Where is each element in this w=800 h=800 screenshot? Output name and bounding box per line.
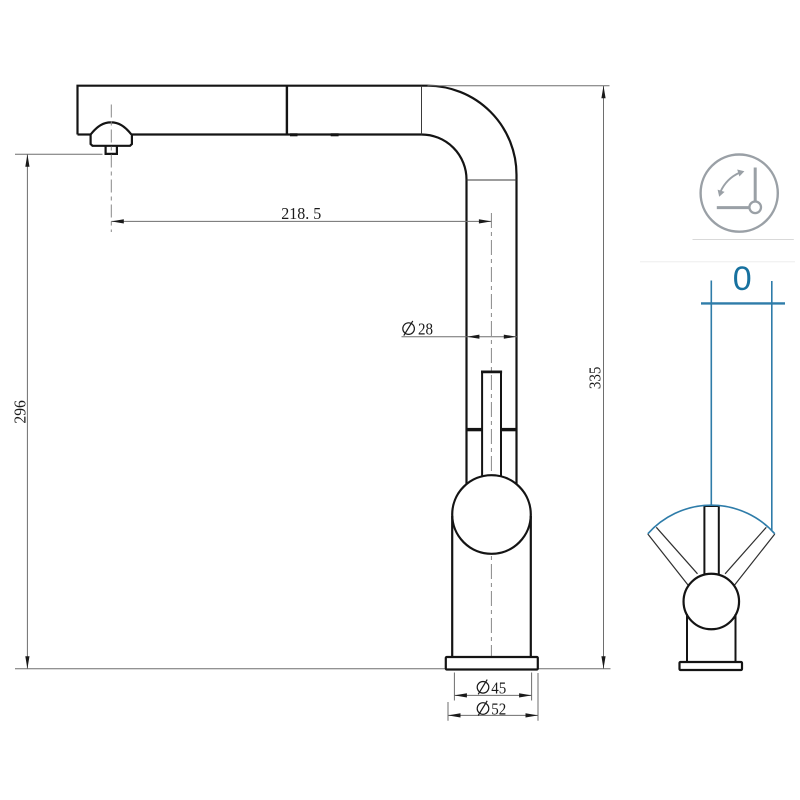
svg-text:218. 5: 218. 5: [281, 204, 321, 223]
svg-text:296: 296: [11, 400, 30, 423]
svg-text:28: 28: [418, 320, 433, 339]
svg-text:335: 335: [586, 367, 605, 390]
svg-text:0: 0: [733, 260, 752, 298]
svg-text:45: 45: [491, 678, 506, 697]
svg-text:52: 52: [491, 700, 506, 719]
